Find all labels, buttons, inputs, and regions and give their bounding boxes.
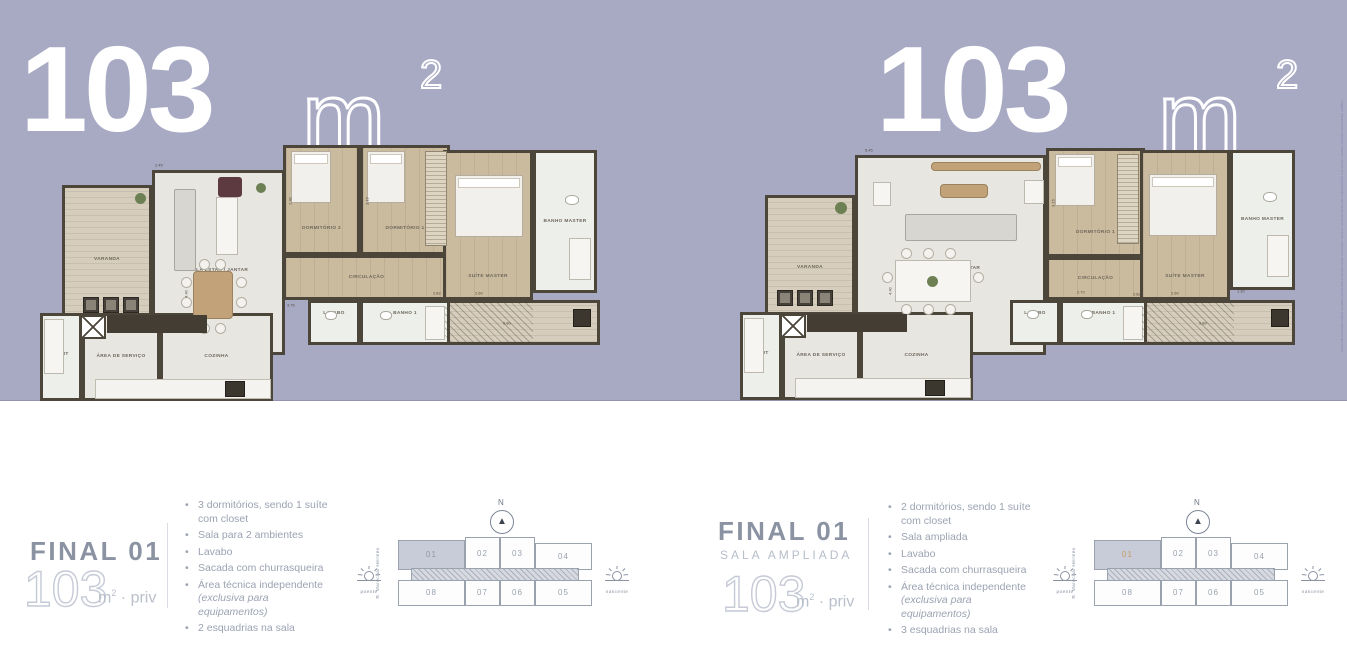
furniture-dot xyxy=(901,248,912,259)
furniture-dot xyxy=(181,277,192,288)
furniture-wc xyxy=(380,311,392,320)
hero-number: 103 xyxy=(876,21,1068,157)
furniture-wc xyxy=(325,311,337,320)
furniture-planter xyxy=(777,290,793,306)
feature-item-note: (exclusiva para equipamentos) xyxy=(901,594,972,620)
furniture-sofa xyxy=(174,189,196,271)
furniture-shelves xyxy=(1117,154,1139,244)
furniture-plant xyxy=(256,183,266,193)
furniture-sofa xyxy=(905,214,1017,241)
room-label: COZINHA xyxy=(874,353,960,358)
room-label: COZINHA xyxy=(174,354,260,359)
furniture-bed xyxy=(367,151,405,203)
room-circulacao: CIRCULAÇÃO xyxy=(1046,257,1145,300)
keyplan-unit-03: 03 xyxy=(1196,537,1231,570)
furniture-planter xyxy=(103,297,119,313)
furniture-island xyxy=(873,182,891,206)
room-label: VARANDA xyxy=(776,265,843,270)
keyplan-unit-05: 05 xyxy=(1231,580,1288,606)
unit-number: 01 xyxy=(1095,550,1160,559)
keyplan-core xyxy=(1107,568,1275,581)
furniture-island xyxy=(425,306,445,340)
keyplan-unit-02: 02 xyxy=(465,537,500,570)
furniture-dot xyxy=(923,304,934,315)
sun-east-label: nascente xyxy=(603,590,630,595)
feature-list-left: 3 dormitórios, sendo 1 suíte com closetS… xyxy=(185,499,337,639)
compass-icon: ▲ xyxy=(490,510,514,534)
furniture-bed xyxy=(455,175,523,237)
feature-item: Sala para 2 ambientes xyxy=(185,529,337,543)
keyplan-unit-01: 01 xyxy=(1094,540,1161,570)
hero-number: 103 xyxy=(20,21,212,157)
furniture-dot xyxy=(236,277,247,288)
furniture-dot xyxy=(199,259,210,270)
furniture-grill xyxy=(925,380,945,396)
dimension-label: 4.40 xyxy=(889,287,893,295)
furniture-counter xyxy=(107,315,207,333)
unit-number: 07 xyxy=(1162,588,1195,597)
dimension-label: 2.60 xyxy=(1171,292,1179,296)
unit-number: 05 xyxy=(1232,588,1287,597)
furniture-planter xyxy=(123,297,139,313)
room-lavabo: LAVABO xyxy=(1010,300,1060,345)
page: 103 m 2 103 m 2 VARANDASALA ESTAR / JANT… xyxy=(0,0,1347,650)
furniture-table xyxy=(940,184,988,198)
furniture-dot xyxy=(945,248,956,259)
keyplan-unit-05: 05 xyxy=(535,580,592,606)
feature-item: Área técnica independente(exclusiva para… xyxy=(888,581,1040,622)
furniture-wc xyxy=(1081,310,1093,319)
furniture-xsq xyxy=(780,314,806,338)
keyplan-right: N▲R. Marechal Hermes0102030408070605poen… xyxy=(1034,498,1344,643)
keyplan-unit-02: 02 xyxy=(1161,537,1196,570)
unit-number: 08 xyxy=(1095,588,1160,597)
furniture-dot xyxy=(945,304,956,315)
vertical-disclaimer: Imagem meramente ilustrativa. Móveis, ut… xyxy=(1336,100,1343,265)
area-hero-right: 103 xyxy=(876,28,1068,150)
keyplan-unit-07: 07 xyxy=(465,580,500,606)
furniture-dot xyxy=(236,297,247,308)
unit-number: 06 xyxy=(1197,588,1230,597)
dimension-label: 2.40 xyxy=(289,197,293,205)
sun-west-icon: poente xyxy=(352,564,386,595)
room-label: VARANDA xyxy=(73,257,140,262)
feature-item: 2 esquadrias na sala xyxy=(185,622,337,636)
compass-needle: ▲ xyxy=(1193,516,1203,527)
detail-area-unit-right: m2 · priv xyxy=(796,592,854,611)
furniture-xsq xyxy=(80,315,106,339)
area-hero-left: 103 xyxy=(20,28,212,150)
furniture-dot xyxy=(215,323,226,334)
north-label: N xyxy=(498,498,504,507)
furniture-grill xyxy=(1271,309,1289,327)
dimension-label: 3.15 xyxy=(366,197,370,205)
furniture-planter xyxy=(817,290,833,306)
furniture-bed xyxy=(1055,154,1095,206)
room-label: SUÍTE MASTER xyxy=(454,273,521,278)
keyplan-unit-01: 01 xyxy=(398,540,465,570)
furniture-hatch xyxy=(445,302,533,343)
room-label: CIRCULAÇÃO xyxy=(302,274,431,279)
dimension-label: 1.30 xyxy=(539,290,547,294)
furniture-grill xyxy=(225,381,245,397)
dimension-label: 3.15 xyxy=(1052,199,1056,207)
furniture-island xyxy=(1024,180,1044,204)
keyplan-unit-08: 08 xyxy=(1094,580,1161,606)
keyplan-left: N▲R. Marechal Hermes0102030408070605poen… xyxy=(338,498,648,643)
feature-list-right: 2 dormitórios, sendo 1 suíte com closetS… xyxy=(888,501,1040,641)
furniture-dot xyxy=(973,272,984,283)
svg-text:2: 2 xyxy=(420,53,442,97)
furniture-island xyxy=(216,197,238,255)
svg-text:103: 103 xyxy=(722,568,805,618)
dimension-label: 2.82 xyxy=(433,292,441,296)
divider-left xyxy=(167,523,168,608)
feature-item: 3 esquadrias na sala xyxy=(888,624,1040,638)
unit-number: 07 xyxy=(466,588,499,597)
furniture-grill xyxy=(573,309,591,327)
feature-item: Sacada com churrasqueira xyxy=(888,564,1040,578)
divider-right xyxy=(868,518,869,610)
detail-area-unit-left: m2 · priv xyxy=(98,588,156,607)
furniture-dot xyxy=(882,272,893,283)
furniture-dot xyxy=(923,248,934,259)
dimension-label: 2.70 xyxy=(1077,291,1085,295)
floor-plan-final-01-sala-ampliada: VARANDASALA ESTAR / JANTARDORMITÓRIO 1CI… xyxy=(735,140,1305,405)
furniture-dot xyxy=(181,297,192,308)
compass-needle: ▲ xyxy=(497,516,507,527)
compass-icon: ▲ xyxy=(1186,510,1210,534)
feature-item: Lavabo xyxy=(888,548,1040,562)
svg-text:2: 2 xyxy=(1276,53,1298,97)
keyplan-unit-07: 07 xyxy=(1161,580,1196,606)
feature-item: 3 dormitórios, sendo 1 suíte com closet xyxy=(185,499,337,526)
furniture-plant xyxy=(835,202,847,214)
sun-east-label: nascente xyxy=(1299,590,1326,595)
feature-item: Área técnica independente(exclusiva para… xyxy=(185,579,337,620)
furniture-bed xyxy=(291,151,331,203)
svg-text:103: 103 xyxy=(24,563,107,613)
detail-title-right: FINAL 01 xyxy=(718,516,850,547)
unit-number: 01 xyxy=(399,550,464,559)
floor-plan-final-01: VARANDASALA ESTAR / JANTARDORMITÓRIO 2DO… xyxy=(35,143,605,408)
room-label: BANHO MASTER xyxy=(1239,217,1286,222)
furniture-bed xyxy=(1149,174,1217,236)
furniture-planter xyxy=(83,297,99,313)
dimension-label: 2.60 xyxy=(475,292,483,296)
keyplan-unit-06: 06 xyxy=(1196,580,1231,606)
feature-item: Lavabo xyxy=(185,546,337,560)
furniture-island xyxy=(744,318,764,373)
keyplan-unit-08: 08 xyxy=(398,580,465,606)
room-label: SUÍTE MASTER xyxy=(1151,273,1218,278)
dimension-label: 3.76 xyxy=(287,304,295,308)
furniture-island xyxy=(44,319,64,374)
furniture-chair xyxy=(218,177,242,197)
room-label: DORMITÓRIO 2 xyxy=(293,226,350,231)
dimension-label: 5.80 xyxy=(1199,322,1207,326)
keyplan-unit-06: 06 xyxy=(500,580,535,606)
feature-item: Sala ampliada xyxy=(888,531,1040,545)
feature-item: Sacada com churrasqueira xyxy=(185,562,337,576)
furniture-plant xyxy=(135,193,146,204)
dimension-label: 5.80 xyxy=(503,322,511,326)
sun-east-icon: nascente xyxy=(1296,564,1330,595)
keyplan-unit-04: 04 xyxy=(1231,543,1288,570)
dimension-label: 2.45 xyxy=(155,164,163,168)
furniture-hatch xyxy=(1142,302,1234,343)
furniture-wc xyxy=(1027,310,1039,319)
feature-item-note: (exclusiva para equipamentos) xyxy=(198,592,269,618)
dimension-label: 4.40 xyxy=(185,290,189,298)
keyplan-unit-04: 04 xyxy=(535,543,592,570)
detail-subtitle-right: SALA AMPLIADA xyxy=(720,548,852,562)
sun-west-label: poente xyxy=(1051,590,1078,595)
furniture-wc xyxy=(565,195,579,205)
unit-number: 04 xyxy=(536,552,591,561)
unit-number: 02 xyxy=(466,549,499,558)
furniture-island xyxy=(569,238,591,280)
feature-item: 2 dormitórios, sendo 1 suíte com closet xyxy=(888,501,1040,528)
unit-number: 05 xyxy=(536,588,591,597)
room-circulacao: CIRCULAÇÃO xyxy=(283,255,450,300)
north-label: N xyxy=(1194,498,1200,507)
dimension-label: 2.82 xyxy=(1133,293,1141,297)
furniture-island xyxy=(1267,235,1289,277)
unit-number: 03 xyxy=(1197,549,1230,558)
room-label: CIRCULAÇÃO xyxy=(1058,275,1132,280)
room-label: BANHO MASTER xyxy=(542,218,588,223)
keyplan-unit-03: 03 xyxy=(500,537,535,570)
unit-number: 08 xyxy=(399,588,464,597)
sun-east-icon: nascente xyxy=(600,564,634,595)
sun-west-icon: poente xyxy=(1048,564,1082,595)
furniture-island xyxy=(1123,306,1143,340)
room-label: ÁREA DE SERVIÇO xyxy=(92,354,150,359)
furniture-table xyxy=(931,162,1041,171)
furniture-counter xyxy=(807,314,907,332)
furniture-table xyxy=(193,271,233,319)
furniture-plant xyxy=(927,276,938,287)
room-lavabo: LAVABO xyxy=(308,300,360,345)
furniture-shelves xyxy=(425,151,447,246)
dimension-label: 5.45 xyxy=(865,149,873,153)
unit-number: 04 xyxy=(1232,552,1287,561)
dimension-label: 1.30 xyxy=(1237,290,1245,294)
room-label: ÁREA DE SERVIÇO xyxy=(792,353,850,358)
furniture-planter xyxy=(797,290,813,306)
unit-number: 06 xyxy=(501,588,534,597)
furniture-dot xyxy=(215,259,226,270)
sun-west-label: poente xyxy=(355,590,382,595)
furniture-wc xyxy=(1263,192,1277,202)
keyplan-core xyxy=(411,568,579,581)
unit-number: 03 xyxy=(501,549,534,558)
unit-number: 02 xyxy=(1162,549,1195,558)
